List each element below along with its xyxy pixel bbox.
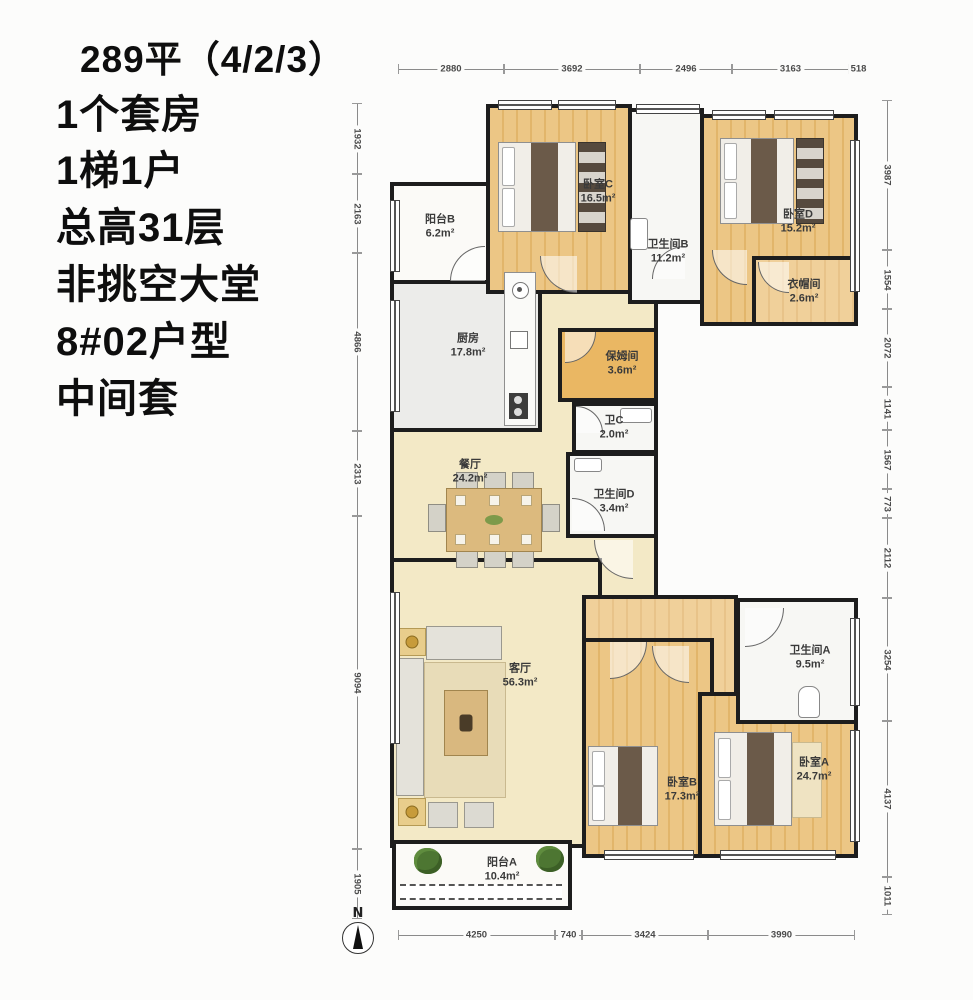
label-balcony-b: 阳台B6.2m² [425,213,455,242]
window-bedroom-d-2 [774,110,834,120]
window-bedroom-d-right [850,140,860,292]
compass-icon [342,922,374,954]
basin-bath-b [630,218,648,250]
label-living: 客厅56.3m² [503,662,538,691]
dimension-chain-bottom: 4250 740 3424 3990 [398,930,855,940]
plant-icon [414,848,442,874]
label-bedroom-a: 卧室A24.7m² [797,756,832,785]
dining-chair [542,504,560,532]
window-bedroom-a-right [850,730,860,842]
coffee-table [444,690,488,756]
listing-info: 289平（4/2/3） 1个套房 1梯1户 总高31层 非挑空大堂 8#02户型… [56,34,346,427]
label-cloakroom: 衣帽间2.6m² [788,278,821,307]
north-label: N [338,906,378,921]
info-unit-line: 8#02户型 [56,314,346,371]
info-elevator-line: 1梯1户 [56,143,346,200]
label-dining: 餐厅24.2m² [453,458,488,487]
window-balcony-b [390,200,400,272]
window-bedroom-c-2 [558,100,616,110]
sofa-left [396,658,424,796]
label-bath-a: 卫生间A9.5m² [790,644,831,673]
label-bedroom-d: 卧室D15.2m² [781,208,816,237]
side-table-living-bottom [398,798,426,826]
north-compass: N [338,906,378,954]
dining-chair [456,550,478,568]
bed-bedroom-c [498,142,576,232]
info-position-line: 中间套 [56,371,346,428]
label-kitchen: 厨房17.8m² [451,332,486,361]
info-floors-line: 总高31层 [56,200,346,257]
floor-plan: 阳台B6.2m² 卧室C16.5m² 卫生间B11.2m² 卧室D15.2m² … [390,100,860,915]
stool-living-2 [464,802,494,828]
window-kitchen [390,300,400,412]
label-bath-c: 卫C2.0m² [600,414,629,443]
window-bedroom-d-1 [712,110,766,120]
info-lobby-line: 非挑空大堂 [56,257,346,314]
info-suite-line: 1个套房 [56,87,346,144]
dimension-chain-left: 1932 2163 4866 2313 9094 1905 [352,103,362,919]
window-bedroom-b-bottom [604,850,694,860]
kitchen-counter [504,272,536,426]
label-bedroom-c: 卧室C16.5m² [581,178,616,207]
balcony-a-window [400,884,562,900]
dimension-chain-right: 3987 1554 2072 1141 1567 773 2112 3254 4… [882,100,892,915]
basin-bath-d [574,458,602,472]
label-balcony-a: 阳台A10.4m² [485,856,520,885]
dining-chair [512,550,534,568]
window-bedroom-c-1 [498,100,552,110]
window-living [390,592,400,744]
label-bath-d: 卫生间D3.4m² [594,488,635,517]
info-area-line: 289平（4/2/3） [56,34,346,87]
sofa-top [426,626,502,660]
label-nanny: 保姆间3.6m² [606,350,639,379]
floor-plan-page: 289平（4/2/3） 1个套房 1梯1户 总高31层 非挑空大堂 8#02户型… [0,0,973,1000]
side-table-living-top [398,628,426,656]
dining-chair [428,504,446,532]
dimension-chain-top: 2880 3692 2496 3163 518 [398,64,868,74]
plant-icon [536,846,564,872]
window-bedroom-a-bottom [720,850,836,860]
dining-chair [484,550,506,568]
window-bath-b [636,104,700,114]
label-bedroom-b: 卧室B17.3m² [665,776,700,805]
label-bath-b: 卫生间B11.2m² [648,238,689,267]
dining-table [446,488,542,552]
stool-living-1 [428,802,458,828]
toilet-bath-a [798,686,820,718]
bed-bedroom-b [588,746,658,826]
bed-bedroom-a [714,732,792,826]
window-bath-a [850,618,860,706]
